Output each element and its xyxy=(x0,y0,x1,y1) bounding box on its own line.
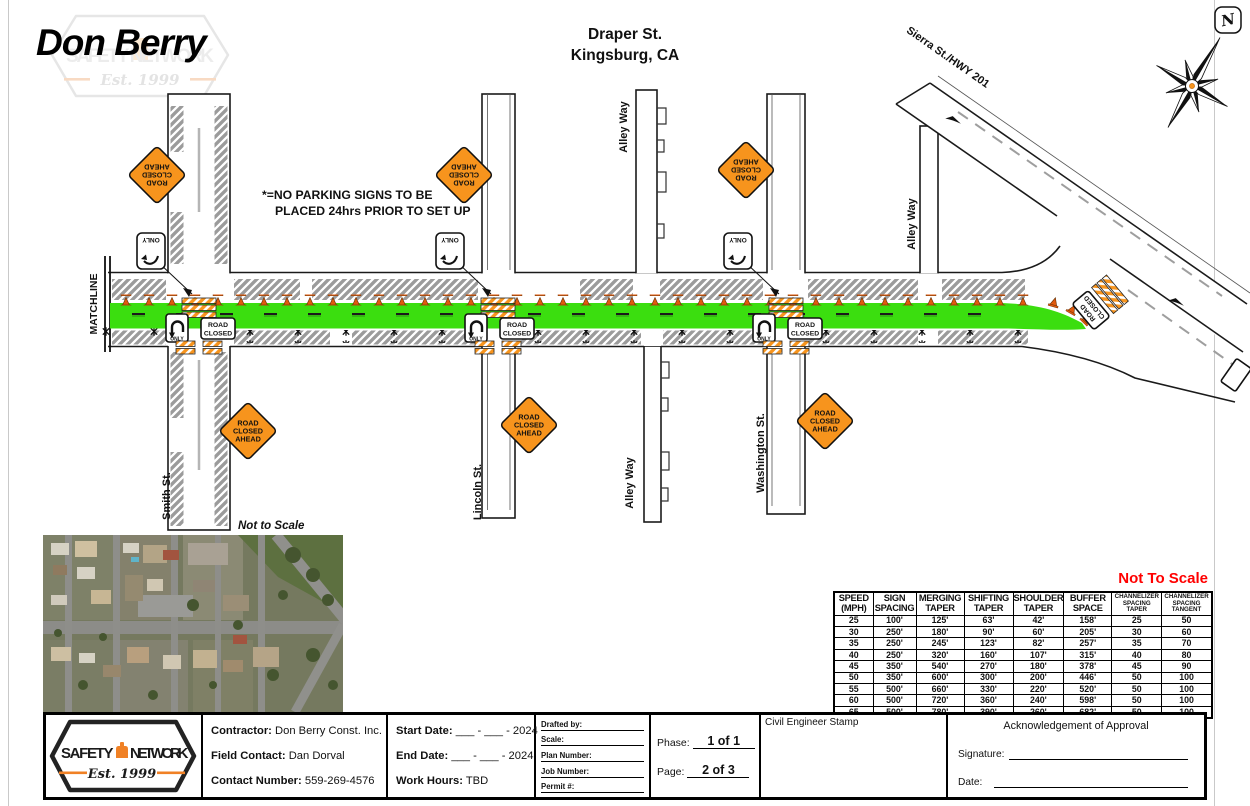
taper-table-cell: 35 xyxy=(1112,638,1162,649)
taper-table-cell: 40 xyxy=(834,649,873,660)
svg-text:CLOSED: CLOSED xyxy=(503,331,531,338)
barricade xyxy=(182,298,216,304)
svg-text:ONLY: ONLY xyxy=(729,236,747,243)
taper-table-cell: 63' xyxy=(964,615,1013,626)
taper-header-row: SPEED (MPH) SIGN SPACING MERGING TAPER S… xyxy=(834,592,1212,615)
barricade xyxy=(769,298,803,304)
taper-table-cell: 45 xyxy=(1112,661,1162,672)
taper-table-cell: 200' xyxy=(1013,672,1064,683)
taper-header: SHOULDER TAPER xyxy=(1013,592,1064,615)
alley-way-top xyxy=(636,90,657,274)
logo-word-safety: SAFETY xyxy=(61,745,113,762)
taper-table-cell: 720' xyxy=(916,695,964,706)
taper-table-cell: 100 xyxy=(1162,672,1212,683)
barricade xyxy=(502,349,521,355)
taper-table-cell: 50 xyxy=(1162,615,1212,626)
taper-table-cell: 60' xyxy=(1013,627,1064,638)
taper-header: MERGING TAPER xyxy=(916,592,964,615)
taper-table-row: 25100'125'63'42'158'2550 xyxy=(834,615,1212,626)
taper-table-cell: 350' xyxy=(873,661,916,672)
taper-table-cell: 100' xyxy=(873,615,916,626)
barricade xyxy=(203,341,222,347)
barricade xyxy=(176,341,195,347)
taper-table-cell: 520' xyxy=(1064,684,1112,695)
civil-engineer-stamp-cell: Civil Engineer Stamp xyxy=(761,715,948,797)
end-date-value: ___ - ___ - 2024 xyxy=(451,750,533,762)
contractor-value: Don Berry Const. Inc. xyxy=(275,725,382,737)
phase-page-cell: Phase:1 of 1 Page:2 of 3 xyxy=(651,715,761,797)
taper-table-cell: 598' xyxy=(1064,695,1112,706)
taper-table-cell: 300' xyxy=(964,672,1013,683)
approval-cell: Acknowledgement of Approval Signature: D… xyxy=(948,715,1204,797)
taper-table-cell: 82' xyxy=(1013,638,1064,649)
barricade xyxy=(502,341,521,347)
taper-table-cell: 100 xyxy=(1162,695,1212,706)
taper-table-cell: 330' xyxy=(964,684,1013,695)
taper-table-cell: 40 xyxy=(1112,649,1162,660)
traffic-control-plan-page: SAFETY NETWORK Est. 1999 Don Berry Drape… xyxy=(0,0,1250,806)
taper-table-cell: 540' xyxy=(916,661,964,672)
safety-network-logo: SAFETY NETWORK Est. 1999 xyxy=(46,715,203,797)
date-row: Date: xyxy=(958,774,1194,788)
start-date-row: Start Date: ___ - ___ - 2024 xyxy=(396,725,532,737)
taper-table-cell: 500' xyxy=(873,695,916,706)
taper-table-row: 50350'600'300'200'446'50100 xyxy=(834,672,1212,683)
drafted-by-field: Drafted by: xyxy=(541,719,644,731)
taper-table-row: 55500'660'330'220'520'50100 xyxy=(834,684,1212,695)
barricade xyxy=(475,341,494,347)
end-date-label: End Date: xyxy=(396,750,448,762)
lincoln-street-label: Lincoln St. xyxy=(472,464,484,520)
u-turn-only-sign: ONLY xyxy=(465,314,487,343)
taper-table-cell: 320' xyxy=(916,649,964,660)
work-hours-row: Work Hours: TBD xyxy=(396,775,532,787)
barricade xyxy=(203,349,222,355)
taper-table-cell: 180' xyxy=(916,627,964,638)
svg-text:ROAD: ROAD xyxy=(507,322,527,329)
start-date-value: ___ - ___ - 2024 xyxy=(456,725,538,737)
compass-rose: N xyxy=(1132,7,1250,148)
field-contact-row: Field Contact: Dan Dorval xyxy=(211,750,384,762)
corner-parcel xyxy=(1221,358,1250,391)
contractor-info-cell: Contractor: Don Berry Const. Inc. Field … xyxy=(203,715,388,797)
taper-table-cell: 240' xyxy=(1013,695,1064,706)
client-logo-text: Don Berry xyxy=(36,22,206,64)
road-closed-sign: ROAD CLOSED xyxy=(500,318,534,339)
barricade xyxy=(182,305,216,311)
contact-number-value: 559-269-4576 xyxy=(305,775,375,787)
taper-header: SIGN SPACING xyxy=(873,592,916,615)
plan-drawing: MATCHLINE xyxy=(0,0,1250,560)
sierra-ne-edge xyxy=(930,83,1247,304)
taper-header: CHANNELIZER SPACING TAPER xyxy=(1112,592,1162,615)
alley-way-right-label: Alley Way xyxy=(906,197,918,249)
taper-table-cell: 315' xyxy=(1064,649,1112,660)
logo-dash-left xyxy=(59,772,87,775)
taper-table-cell: 42' xyxy=(1013,615,1064,626)
turn-only-sign-inverted: ONLY xyxy=(724,233,752,269)
svg-text:AHEAD: AHEAD xyxy=(144,163,170,172)
taper-table-cell: 270' xyxy=(964,661,1013,672)
taper-table-cell: 107' xyxy=(1013,649,1064,660)
taper-table-cell: 55 xyxy=(834,684,873,695)
page-row: Page:2 of 3 xyxy=(657,763,759,778)
barricade xyxy=(790,341,809,347)
contact-number-row: Contact Number: 559-269-4576 xyxy=(211,775,384,787)
svg-text:AHEAD: AHEAD xyxy=(812,425,838,434)
taper-table-cell: 25 xyxy=(834,615,873,626)
svg-text:AHEAD: AHEAD xyxy=(733,158,759,167)
taper-table-cell: 50 xyxy=(1112,672,1162,683)
washington-street-label: Washington St. xyxy=(755,413,767,493)
logo-est-text: Est. 1999 xyxy=(86,767,155,782)
taper-table-cell: 660' xyxy=(916,684,964,695)
taper-table-cell: 45 xyxy=(834,661,873,672)
taper-table-cell: 100 xyxy=(1162,684,1212,695)
note-line-1: *=NO PARKING SIGNS TO BE xyxy=(262,187,471,203)
signature-line xyxy=(1009,746,1188,760)
u-turn-only-sign: ONLY xyxy=(166,314,188,343)
barricade xyxy=(769,305,803,311)
svg-text:AHEAD: AHEAD xyxy=(451,163,477,172)
sheet-title-city: Kingsburg, CA xyxy=(535,45,715,66)
plan-number-field: Plan Number: xyxy=(541,750,644,762)
taper-table-row: 30250'180'90'60'205'3060 xyxy=(834,627,1212,638)
alley-way-right xyxy=(920,126,938,274)
taper-table-cell: 80 xyxy=(1162,649,1212,660)
taper-table-cell: 70 xyxy=(1162,638,1212,649)
taper-table-cell: 50 xyxy=(1112,684,1162,695)
turn-only-sign-inverted: ONLY xyxy=(137,233,165,269)
sierra-street-label: Sierra St./HWY 201 xyxy=(904,24,991,90)
end-date-row: End Date: ___ - ___ - 2024 xyxy=(396,750,532,762)
taper-table-cell: 245' xyxy=(916,638,964,649)
approval-title: Acknowledgement of Approval xyxy=(958,720,1194,732)
barricade xyxy=(481,298,515,304)
taper-table-row: 60500'720'360'240'598'50100 xyxy=(834,695,1212,706)
road-closed-sign: ROAD CLOSED xyxy=(788,318,822,339)
taper-table-cell: 123' xyxy=(964,638,1013,649)
taper-table-cell: 350' xyxy=(873,672,916,683)
table-not-to-scale-label: Not To Scale xyxy=(1030,570,1208,587)
taper-header: BUFFER SPACE xyxy=(1064,592,1112,615)
taper-table-cell: 250' xyxy=(873,649,916,660)
svg-text:AHEAD: AHEAD xyxy=(516,429,542,438)
u-turn-only-sign: ONLY xyxy=(753,314,775,343)
alley-way-top-label: Alley Way xyxy=(618,100,630,152)
taper-table-cell: 378' xyxy=(1064,661,1112,672)
work-hours-value: TBD xyxy=(466,775,488,787)
end-road-closure: ROAD CLOSED xyxy=(1072,275,1128,330)
barricade xyxy=(763,341,782,347)
taper-table-cell: 90' xyxy=(964,627,1013,638)
barricade xyxy=(481,305,515,311)
matchline-label: MATCHLINE xyxy=(88,273,100,334)
page-value: 2 of 3 xyxy=(687,763,749,778)
sierra-sidewalk-line xyxy=(938,76,1250,293)
taper-header: SHIFTING TAPER xyxy=(964,592,1013,615)
aerial-photo xyxy=(43,535,343,712)
taper-table-cell: 250' xyxy=(873,638,916,649)
work-hours-label: Work Hours: xyxy=(396,775,463,787)
alley-way-bottom-label: Alley Way xyxy=(624,456,636,508)
contractor-row: Contractor: Don Berry Const. Inc. xyxy=(211,725,384,737)
taper-table-cell: 158' xyxy=(1064,615,1112,626)
taper-table-cell: 60 xyxy=(834,695,873,706)
signature-row: Signature: xyxy=(958,746,1194,760)
date-label: Date: xyxy=(958,777,982,788)
note-line-2: PLACED 24hrs PRIOR TO SET UP xyxy=(275,203,471,219)
field-contact-label: Field Contact: xyxy=(211,750,286,762)
taper-table-cell: 446' xyxy=(1064,672,1112,683)
taper-table: SPEED (MPH) SIGN SPACING MERGING TAPER S… xyxy=(833,591,1213,719)
taper-table-row: 35250'245'123'82'257'3570 xyxy=(834,638,1212,649)
svg-text:ROAD: ROAD xyxy=(795,322,815,329)
logo-dash-right xyxy=(157,772,185,775)
contact-number-label: Contact Number: xyxy=(211,775,302,787)
phase-value: 1 of 1 xyxy=(693,734,755,749)
taper-table-cell: 250' xyxy=(873,627,916,638)
taper-table-cell: 30 xyxy=(1112,627,1162,638)
svg-text:ONLY: ONLY xyxy=(142,236,160,243)
signature-label: Signature: xyxy=(958,749,1004,760)
taper-table-cell: 180' xyxy=(1013,661,1064,672)
drafting-info-cell: Drafted by: Scale: Plan Number: Job Numb… xyxy=(536,715,651,797)
alley-way-bottom xyxy=(644,346,661,522)
barricade xyxy=(176,349,195,355)
taper-table-cell: 25 xyxy=(1112,615,1162,626)
taper-table-row: 40250'320'160'107'315'4080 xyxy=(834,649,1212,660)
phase-label: Phase: xyxy=(657,737,690,749)
draper-centerline-dashes xyxy=(120,313,1000,317)
start-date-label: Start Date: xyxy=(396,725,453,737)
contractor-label: Contractor: xyxy=(211,725,272,737)
permit-field: Permit #: xyxy=(541,781,644,793)
scale-field: Scale: xyxy=(541,734,644,746)
taper-table-cell: 35 xyxy=(834,638,873,649)
draper-south-curb xyxy=(108,347,1235,403)
dates-cell: Start Date: ___ - ___ - 2024 End Date: _… xyxy=(388,715,536,797)
no-parking-note: *=NO PARKING SIGNS TO BE PLACED 24hrs PR… xyxy=(262,187,471,219)
barricade xyxy=(790,349,809,355)
taper-table-row: 45350'540'270'180'378'4590 xyxy=(834,661,1212,672)
barricade xyxy=(763,349,782,355)
barricade xyxy=(475,349,494,355)
taper-table-cell: 220' xyxy=(1013,684,1064,695)
sheet-title: Draper St. Kingsburg, CA xyxy=(535,24,715,66)
taper-header: SPEED (MPH) xyxy=(834,592,873,615)
road-closed-sign: ROAD CLOSED xyxy=(201,318,235,339)
svg-text:CLOSED: CLOSED xyxy=(791,331,819,338)
taper-table-cell: 500' xyxy=(873,684,916,695)
page-label: Page: xyxy=(657,766,684,778)
field-contact-value: Dan Dorval xyxy=(289,750,345,762)
taper-table-cell: 50 xyxy=(1112,695,1162,706)
turn-only-sign-inverted: ONLY xyxy=(436,233,464,269)
svg-text:AHEAD: AHEAD xyxy=(235,435,261,444)
svg-text:ROAD: ROAD xyxy=(208,322,228,329)
svg-text:ONLY: ONLY xyxy=(441,236,459,243)
taper-header: CHANNELIZER SPACING TANGENT xyxy=(1162,592,1212,615)
taper-table-cell: 600' xyxy=(916,672,964,683)
map-not-to-scale-label: Not to Scale xyxy=(238,520,304,532)
taper-table-cell: 90 xyxy=(1162,661,1212,672)
taper-table-cell: 360' xyxy=(964,695,1013,706)
taper-table-cell: 205' xyxy=(1064,627,1112,638)
logo-word-network: NETWORK xyxy=(130,745,189,762)
svg-text:CLOSED: CLOSED xyxy=(204,331,232,338)
taper-table-cell: 50 xyxy=(834,672,873,683)
smith-street-label: Smith St. xyxy=(161,472,173,520)
taper-table-cell: 60 xyxy=(1162,627,1212,638)
taper-table-cell: 257' xyxy=(1064,638,1112,649)
taper-table-cell: 160' xyxy=(964,649,1013,660)
job-number-field: Job Number: xyxy=(541,766,644,778)
phase-row: Phase:1 of 1 xyxy=(657,734,759,749)
taper-table-cell: 125' xyxy=(916,615,964,626)
date-line xyxy=(994,774,1188,788)
stamp-label: Civil Engineer Stamp xyxy=(765,717,858,728)
title-block: SAFETY NETWORK Est. 1999 Contractor: Don… xyxy=(43,712,1207,800)
taper-table-cell: 30 xyxy=(834,627,873,638)
sheet-title-street: Draper St. xyxy=(535,24,715,45)
